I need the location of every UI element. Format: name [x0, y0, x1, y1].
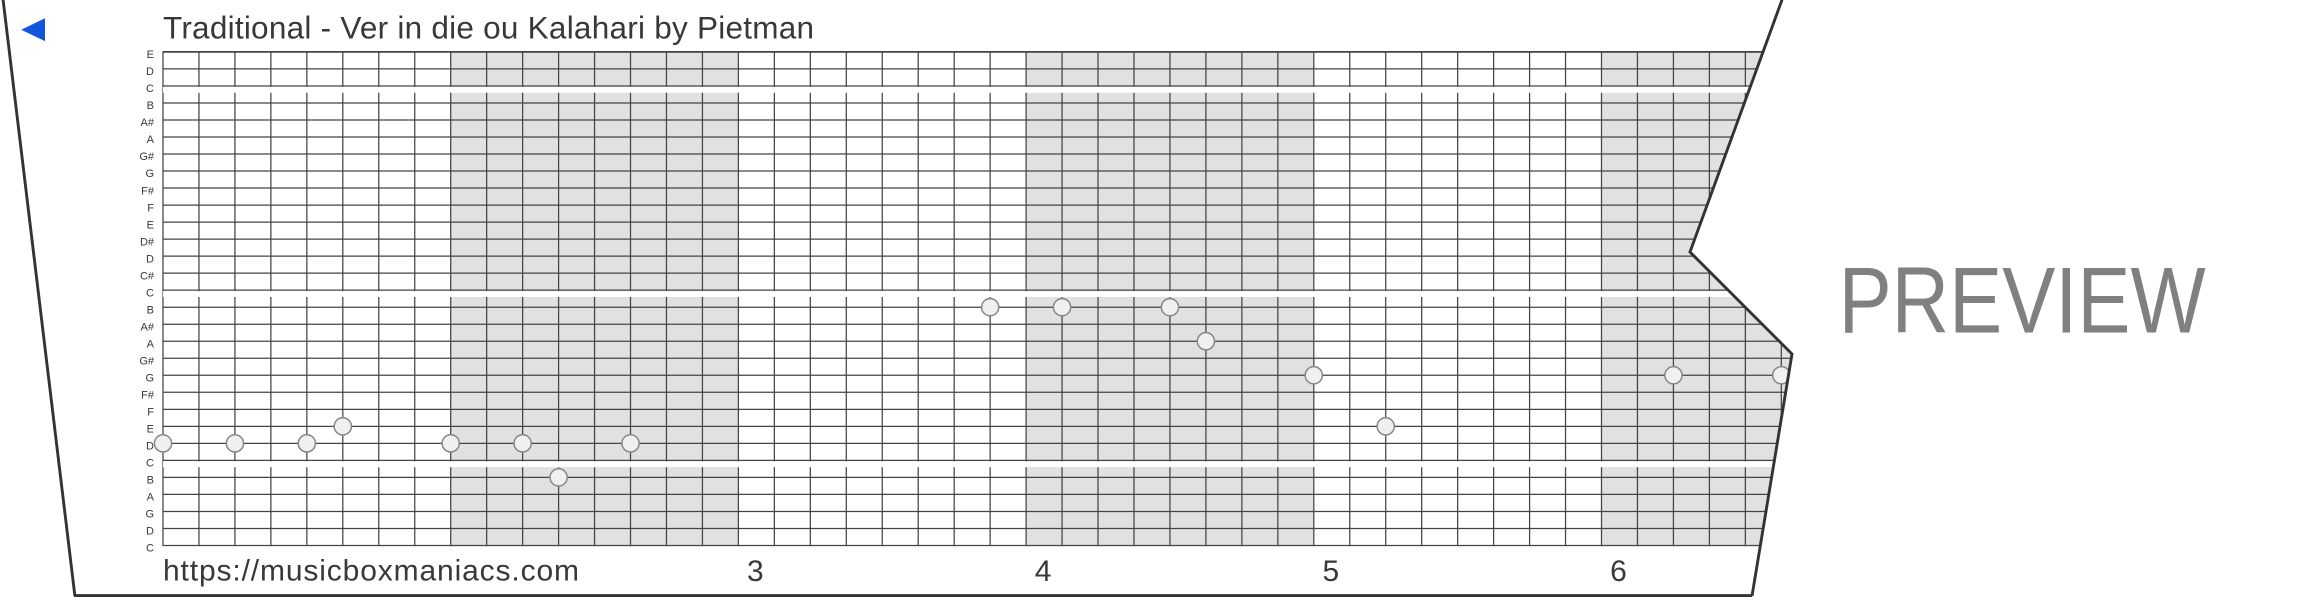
svg-text:F#: F#: [141, 185, 155, 197]
svg-text:C: C: [146, 287, 154, 299]
svg-text:A#: A#: [141, 117, 155, 129]
svg-text:5: 5: [1322, 555, 1339, 588]
svg-text:3: 3: [747, 555, 764, 588]
svg-text:F#: F#: [141, 390, 155, 402]
svg-text:Traditional - Ver in die ou Ka: Traditional - Ver in die ou Kalahari by …: [163, 9, 814, 45]
svg-text:G#: G#: [139, 355, 155, 367]
svg-text:C: C: [146, 83, 154, 95]
svg-text:E: E: [147, 49, 154, 61]
svg-text:A#: A#: [141, 321, 155, 333]
svg-text:6: 6: [1610, 555, 1627, 588]
svg-text:PREVIEW: PREVIEW: [1839, 248, 2206, 353]
svg-text:D: D: [146, 66, 154, 78]
svg-text:E: E: [147, 219, 154, 231]
svg-text:C#: C#: [140, 270, 155, 282]
svg-text:G#: G#: [139, 151, 155, 163]
svg-text:G: G: [145, 509, 154, 521]
svg-text:https://musicboxmaniacs.com: https://musicboxmaniacs.com: [163, 555, 579, 588]
svg-text:G: G: [145, 372, 154, 384]
svg-text:D: D: [146, 441, 154, 453]
svg-text:D#: D#: [140, 236, 155, 248]
svg-text:C: C: [146, 543, 154, 555]
svg-text:B: B: [147, 475, 154, 487]
svg-text:F: F: [147, 407, 154, 419]
svg-text:B: B: [147, 100, 154, 112]
svg-text:B: B: [147, 304, 154, 316]
svg-text:E: E: [147, 424, 154, 436]
svg-text:A: A: [147, 338, 155, 350]
svg-text:D: D: [146, 253, 154, 265]
svg-text:D: D: [146, 526, 154, 538]
svg-text:C: C: [146, 458, 154, 470]
svg-text:4: 4: [1035, 555, 1052, 588]
svg-text:F: F: [147, 202, 154, 214]
svg-text:A: A: [147, 492, 155, 504]
svg-text:A: A: [147, 134, 155, 146]
svg-text:G: G: [145, 168, 154, 180]
